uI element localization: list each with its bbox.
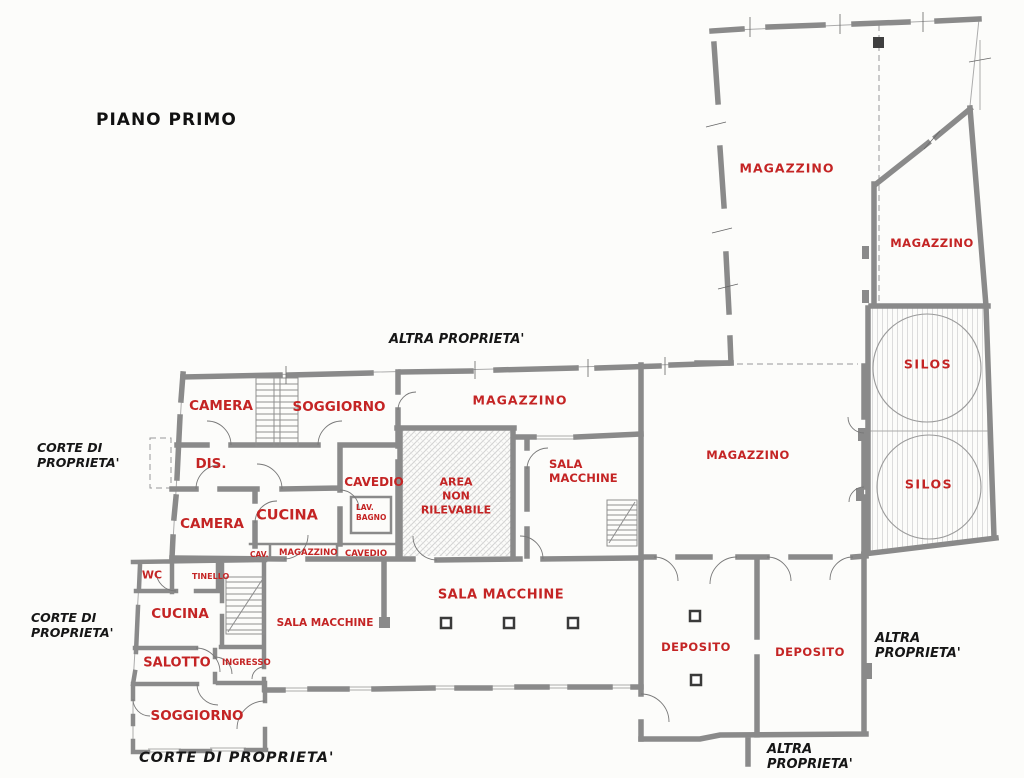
- boundary-label-altra-proprieta-top: ALTRA PROPRIETA': [389, 332, 524, 347]
- dashed-lines-layer: [150, 25, 879, 488]
- room-label-camera-upper: CAMERA: [189, 399, 253, 415]
- room-label-magazzino-small: MAGAZZINO: [279, 548, 337, 558]
- room-label-silos-lower: SILOS: [905, 478, 953, 493]
- room-label-dis: DIS.: [195, 457, 226, 473]
- room-label-cavedio-small: CAVEDIO: [345, 549, 387, 559]
- room-label-cav: CAV.: [250, 551, 269, 560]
- room-label-magazzino-center: MAGAZZINO: [473, 394, 568, 409]
- room-label-area-non-rilevabile: AREA NON RILEVABILE: [421, 475, 491, 516]
- room-label-sala-macchine-west: SALA MACCHINE: [277, 617, 374, 629]
- walls-deposito: [641, 556, 866, 764]
- room-label-sala-macchine-center: SALA MACCHINE: [438, 587, 564, 602]
- wall-long-boundary: [183, 363, 731, 377]
- walls-layer: [133, 19, 996, 764]
- plan-title: PIANO PRIMO: [96, 110, 237, 130]
- floor-plan-page: PIANO PRIMO ALTRA PROPRIETA' CORTE DI PR…: [0, 0, 1024, 778]
- boundary-label-corte-south: CORTE DI PROPRIETA': [139, 750, 334, 767]
- room-label-magazzino-north: MAGAZZINO: [740, 162, 835, 177]
- room-label-cavedio: CAVEDIO: [344, 475, 403, 489]
- boundary-label-altra-proprieta-east: ALTRA PROPRIETA': [875, 631, 961, 662]
- wall-diagonal-ne: [876, 109, 970, 184]
- room-label-deposito-east: DEPOSITO: [775, 646, 845, 660]
- room-label-ingresso: INGRESSO: [222, 658, 271, 668]
- room-label-cucina-upper: CUCINA: [256, 507, 318, 524]
- room-label-sala-macchine-upper: SALA MACCHINE: [549, 458, 618, 485]
- room-label-soggiorno-lower: SOGGIORNO: [150, 709, 243, 725]
- boundary-label-corte-west-lower: CORTE DI PROPRIETA': [31, 611, 113, 641]
- boundary-label-corte-west-upper: CORTE DI PROPRIETA': [37, 441, 119, 471]
- boundary-label-altra-proprieta-south: ALTRA PROPRIETA': [767, 742, 853, 773]
- room-label-magazzino-east: MAGAZZINO: [706, 449, 790, 463]
- room-label-lav-bagno: LAV. BAGNO: [356, 503, 386, 523]
- room-label-silos-upper: SILOS: [904, 358, 952, 373]
- room-label-soggiorno-upper: SOGGIORNO: [292, 400, 385, 416]
- room-label-tinello: TINELLO: [192, 572, 229, 581]
- room-label-magazzino-northeast: MAGAZZINO: [890, 237, 974, 251]
- wall-northwest-slanted: [697, 44, 731, 363]
- room-label-salotto: SALOTTO: [143, 655, 210, 670]
- walls-magazzino-east: [641, 365, 866, 739]
- boundary-post: [873, 37, 884, 48]
- room-label-camera-lower: CAMERA: [180, 517, 244, 533]
- room-label-cucina-lower: CUCINA: [151, 607, 209, 623]
- room-label-deposito-west: DEPOSITO: [661, 641, 731, 655]
- room-label-wc: WC: [142, 570, 162, 583]
